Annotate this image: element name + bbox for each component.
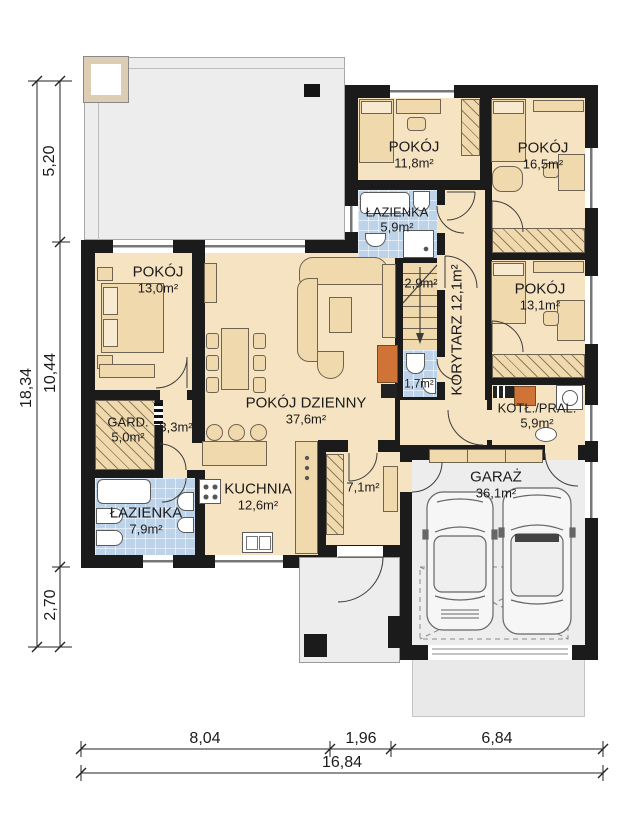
room-area: 1,7m² xyxy=(404,379,433,392)
room-label-hol: 3,3m² xyxy=(159,421,192,436)
dim-left-bottom: 2,70 xyxy=(42,589,60,620)
room-label-kuchnia: KUCHNIA 12,6m² xyxy=(224,481,292,512)
room-name: POKÓJ xyxy=(515,281,566,298)
room-area: 13,0m² xyxy=(133,281,184,296)
room-label-korytarz: KORYTARZ 12,1m² xyxy=(450,264,467,395)
room-label-garderoba: GARD. 5,0m² xyxy=(107,415,148,444)
room-area: 5,0m² xyxy=(107,430,148,445)
room-label-pokoj-11-8: POKÓJ 11,8m² xyxy=(389,139,440,170)
room-area: 16,5m² xyxy=(518,157,569,172)
room-area: 7,9m² xyxy=(110,522,183,537)
room-area: 3,3m² xyxy=(159,421,192,436)
room-label-lazienka-7-9: ŁAZIENKA 7,9m² xyxy=(110,505,183,536)
car-icon xyxy=(423,492,497,630)
room-name: ŁAZIENKA xyxy=(110,505,183,522)
room-label-kotlownia: KOTŁ./PRAL. 5,9m² xyxy=(498,401,577,430)
room-area: 36,1m² xyxy=(470,486,522,501)
room-label-pokoj-13-0: POKÓJ 13,0m² xyxy=(133,264,184,295)
room-area: 37,6m² xyxy=(246,412,367,427)
dim-left-top: 5,20 xyxy=(41,145,59,176)
room-name: POKÓJ xyxy=(518,140,569,157)
room-area: 13,1m² xyxy=(515,298,566,313)
room-area: 11,8m² xyxy=(389,156,440,171)
room-area: 5,9m² xyxy=(498,416,577,431)
dim-bottom-total: 16,84 xyxy=(322,754,362,772)
dim-bottom-mid: 1,96 xyxy=(345,730,376,748)
dim-bottom-right: 6,84 xyxy=(481,730,512,748)
room-label-lazienka-5-9: ŁAZIENKA 5,9m² xyxy=(366,205,429,234)
room-area: 12,6m² xyxy=(224,498,292,513)
car-icon xyxy=(499,488,575,634)
room-name: KUCHNIA xyxy=(224,481,292,498)
room-label-wiatrolap: 7,1m² xyxy=(346,481,379,496)
room-name: POKÓJ xyxy=(389,139,440,156)
room-area: 5,9m² xyxy=(366,220,429,235)
room-name: GARD. xyxy=(107,415,148,430)
room-name: KORYTARZ 12,1m² xyxy=(450,264,467,395)
floor-plan-page: POKÓJ 13,0m² POKÓJ DZIENNY 37,6m² KUCHNI… xyxy=(0,0,634,817)
room-name: KOTŁ./PRAL. xyxy=(498,401,577,416)
garage-gate xyxy=(432,649,568,654)
dim-left-mid: 10,44 xyxy=(42,353,60,393)
dim-left-total: 18,34 xyxy=(18,368,36,408)
room-label-pokoj-16-5: POKÓJ 16,5m² xyxy=(518,140,569,171)
room-label-pokoj-13-1: POKÓJ 13,1m² xyxy=(515,281,566,312)
room-name: POKÓJ xyxy=(133,264,184,281)
room-name: POKÓJ DZIENNY xyxy=(246,395,367,412)
room-label-wc: 1,7m² xyxy=(404,379,433,392)
room-label-pokoj-dzienny: POKÓJ DZIENNY 37,6m² xyxy=(246,395,367,426)
room-name: GARAŻ xyxy=(470,469,522,486)
room-area: 7,1m² xyxy=(346,481,379,496)
room-label-garaz: GARAŻ 36,1m² xyxy=(470,469,522,500)
room-area: 2,9m² xyxy=(404,277,437,292)
stairs-arrow xyxy=(416,333,424,344)
room-name: ŁAZIENKA xyxy=(366,205,429,220)
dim-bottom-left: 8,04 xyxy=(189,730,220,748)
room-label-schody: 2,9m² xyxy=(404,277,437,292)
